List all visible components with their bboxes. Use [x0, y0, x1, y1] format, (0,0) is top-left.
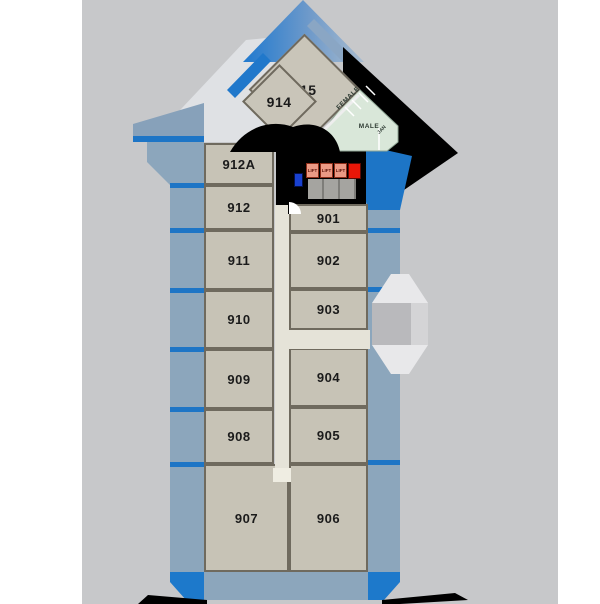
room-label: 911 [228, 253, 250, 268]
room-908[interactable]: 908 [204, 409, 274, 464]
lift-2[interactable]: LIFT [320, 163, 333, 178]
facade-divider [368, 228, 400, 233]
room-912[interactable]: 912 [204, 185, 274, 230]
room-label: 912A [222, 157, 255, 172]
room-label: 909 [227, 372, 250, 387]
facade-divider [170, 462, 204, 467]
facade-band-left [147, 142, 204, 572]
room-label: 910 [227, 312, 250, 327]
facade-divider [170, 228, 204, 233]
facade-divider [368, 460, 400, 465]
chamfer-corner-right [368, 572, 400, 600]
room-label: 903 [317, 302, 340, 317]
facade-divider [170, 407, 204, 412]
chamfer-corner-left [170, 572, 204, 600]
room-906[interactable]: 906 [289, 464, 368, 572]
balcony-octagon-shade [372, 303, 411, 345]
facade-band-right [368, 210, 400, 572]
room-912a[interactable]: 912A [204, 143, 274, 185]
facade-divider [170, 183, 204, 188]
facade-left-top-muted [133, 103, 204, 136]
room-label: 902 [317, 253, 340, 268]
room-903[interactable]: 903 [289, 289, 368, 330]
shadow-bottom-right [382, 593, 468, 604]
facade-divider [170, 347, 204, 352]
facade-left-top-accent [133, 136, 204, 142]
floorplan-stage: 912A 912 911 910 909 908 907 901 902 903… [0, 0, 600, 604]
lift-1[interactable]: LIFT [306, 163, 319, 178]
room-label: 907 [235, 511, 258, 526]
lift-lobby [308, 179, 356, 199]
room-label: 908 [227, 429, 250, 444]
room-905[interactable]: 905 [289, 407, 368, 464]
room-902[interactable]: 902 [289, 232, 368, 289]
room-label: 912 [227, 200, 250, 215]
balcony-octagon-facet [411, 303, 428, 345]
room-907[interactable]: 907 [204, 464, 289, 572]
service-box-blue [294, 173, 303, 187]
lift-3[interactable]: LIFT [334, 163, 347, 178]
facade-band-bottom [204, 572, 368, 600]
room-label: 914 [267, 93, 292, 109]
room-label: 904 [317, 370, 340, 385]
lift-label: LIFT [322, 168, 332, 173]
room-label: 901 [317, 211, 340, 226]
room-901[interactable]: 901 [289, 204, 368, 232]
room-910[interactable]: 910 [204, 290, 274, 349]
room-909[interactable]: 909 [204, 349, 274, 409]
room-904[interactable]: 904 [289, 348, 368, 407]
room-label: 905 [317, 428, 340, 443]
service-box-red [348, 163, 361, 179]
lift-label: LIFT [308, 168, 318, 173]
room-label: 906 [317, 511, 340, 526]
room-911[interactable]: 911 [204, 230, 274, 290]
lift-label: LIFT [336, 168, 346, 173]
facade-divider [170, 288, 204, 293]
